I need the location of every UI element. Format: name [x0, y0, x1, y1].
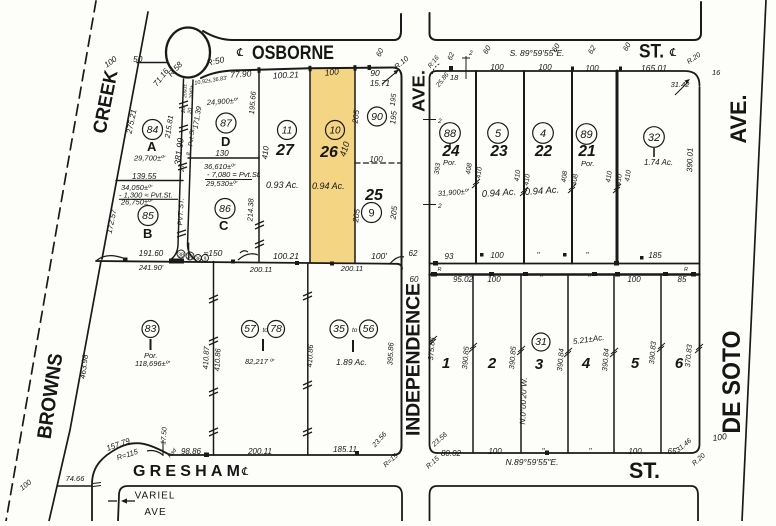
svg-text:1.89 Ac.: 1.89 Ac. — [336, 357, 367, 367]
svg-text:18: 18 — [450, 73, 459, 82]
svg-text:275.21: 275.21 — [124, 109, 138, 136]
svg-text:395.86: 395.86 — [385, 341, 395, 365]
svg-text:241.90': 241.90' — [138, 263, 164, 272]
svg-text:100.21: 100.21 — [273, 69, 300, 80]
svg-text:10: 10 — [329, 126, 341, 137]
svg-text:100: 100 — [324, 66, 339, 77]
svg-text:410: 410 — [260, 145, 270, 160]
svg-text:100: 100 — [488, 447, 502, 456]
svg-text:21: 21 — [577, 143, 595, 160]
svg-text:390.83: 390.83 — [647, 340, 658, 364]
svg-text:": " — [586, 251, 590, 260]
svg-text:90: 90 — [370, 68, 380, 78]
svg-text:23.56: 23.56 — [371, 431, 389, 450]
svg-text:195.66: 195.66 — [247, 90, 258, 114]
svg-text:20: 20 — [187, 107, 194, 116]
svg-text:84: 84 — [147, 124, 159, 136]
svg-text:2: 2 — [437, 203, 442, 210]
svg-text:80.02: 80.02 — [441, 449, 462, 458]
svg-text:370.83: 370.83 — [683, 343, 694, 367]
svg-text:2: 2 — [468, 50, 473, 57]
svg-text:29,700±º': 29,700±º' — [133, 154, 166, 163]
svg-text:0.94 Ac.: 0.94 Ac. — [481, 187, 516, 200]
svg-text:100: 100 — [712, 431, 728, 443]
svg-text:93: 93 — [445, 252, 454, 261]
svg-text:100: 100 — [18, 477, 34, 492]
svg-text:B: B — [143, 226, 152, 241]
svg-text:86: 86 — [219, 203, 231, 215]
svg-text:5: 5 — [495, 128, 502, 140]
svg-text:205: 205 — [389, 205, 400, 221]
svg-text:0.94 Ac.: 0.94 Ac. — [312, 181, 345, 191]
svg-text:195: 195 — [388, 110, 399, 125]
svg-text:100.21: 100.21 — [273, 251, 299, 261]
svg-text:410: 410 — [523, 173, 532, 186]
svg-text:100: 100 — [369, 155, 383, 164]
svg-text:83: 83 — [145, 323, 157, 335]
svg-text:87: 87 — [220, 118, 233, 130]
svg-text:ST.: ST. — [629, 458, 660, 483]
svg-text:100': 100' — [371, 251, 387, 261]
svg-text:1.74 Ac.: 1.74 Ac. — [644, 158, 673, 167]
svg-text:100: 100 — [628, 447, 642, 456]
svg-text:78: 78 — [270, 323, 282, 335]
svg-text:24,900±º': 24,900±º' — [206, 96, 239, 107]
svg-text:390.84: 390.84 — [555, 348, 566, 372]
svg-text:98.86: 98.86 — [181, 447, 202, 456]
svg-text:62: 62 — [409, 249, 418, 258]
svg-text:100: 100 — [490, 251, 504, 260]
svg-text:89: 89 — [580, 129, 592, 141]
svg-text:17.50: 17.50 — [160, 427, 169, 445]
svg-text:205: 205 — [351, 208, 362, 224]
svg-text:GRESHAM: GRESHAM — [133, 463, 240, 480]
svg-text:410.87: 410.87 — [201, 345, 211, 369]
svg-text:R:16: R:16 — [427, 54, 441, 69]
svg-text:38: 38 — [178, 253, 184, 259]
svg-text:60: 60 — [481, 43, 493, 55]
svg-text:100: 100 — [490, 63, 504, 72]
svg-text:INDEPENDENCE: INDEPENDENCE — [403, 283, 425, 436]
svg-text:77.90: 77.90 — [230, 68, 252, 79]
svg-text:0.93 Ac.: 0.93 Ac. — [266, 180, 299, 190]
svg-text:100: 100 — [102, 54, 119, 69]
svg-text:191.60: 191.60 — [139, 249, 164, 258]
svg-text:100: 100 — [585, 64, 599, 73]
svg-text:16: 16 — [712, 68, 721, 77]
svg-text:Por.: Por. — [443, 158, 456, 167]
svg-text:D: D — [221, 134, 230, 149]
svg-text:205: 205 — [351, 109, 362, 125]
svg-text:32: 32 — [648, 132, 660, 144]
svg-text:57: 57 — [244, 323, 257, 335]
svg-text:381.99: 381.99 — [172, 137, 185, 166]
svg-text:100: 100 — [538, 63, 552, 72]
svg-text:56: 56 — [363, 323, 375, 335]
svg-text:88: 88 — [444, 128, 457, 140]
svg-text:C: C — [219, 218, 229, 233]
svg-text:100: 100 — [487, 275, 501, 284]
svg-text:185.11: 185.11 — [333, 445, 357, 454]
svg-text:215.81: 215.81 — [163, 115, 176, 140]
svg-text:60: 60 — [621, 40, 633, 52]
svg-text:29,530±º': 29,530±º' — [205, 179, 238, 188]
svg-text:410: 410 — [605, 170, 614, 183]
svg-text:AVE: AVE — [144, 507, 166, 518]
svg-text:": " — [589, 447, 593, 456]
svg-text:25.86: 25.86 — [434, 71, 450, 89]
svg-text:": " — [537, 251, 541, 260]
svg-text:to: to — [263, 327, 269, 334]
svg-text:410.86: 410.86 — [212, 347, 222, 371]
svg-text:390.01: 390.01 — [685, 148, 695, 173]
svg-text:9: 9 — [368, 208, 374, 220]
svg-text:≈150: ≈150 — [204, 248, 223, 258]
svg-text:℄: ℄ — [241, 466, 249, 478]
svg-text:A: A — [147, 139, 157, 154]
svg-text:2040±: 2040± — [189, 85, 196, 100]
svg-text:410: 410 — [514, 169, 523, 182]
svg-text:90: 90 — [371, 111, 383, 123]
svg-text:95.02: 95.02 — [453, 275, 474, 284]
svg-text:3: 3 — [535, 356, 544, 373]
svg-text:390.84: 390.84 — [600, 348, 611, 372]
svg-text:118,696±º': 118,696±º' — [135, 359, 170, 368]
svg-text:VARIEL: VARIEL — [135, 491, 176, 502]
svg-text:82,217 º': 82,217 º' — [245, 357, 275, 366]
svg-text:R.20: R.20 — [686, 52, 702, 66]
svg-text:R.20: R.20 — [691, 452, 707, 467]
svg-text:200.11: 200.11 — [249, 265, 272, 274]
svg-text:": " — [542, 447, 546, 456]
svg-text:Por.: Por. — [581, 159, 594, 168]
svg-text:to: to — [352, 327, 358, 334]
svg-text:0.94 Ac.: 0.94 Ac. — [524, 185, 559, 198]
svg-text:139.55: 139.55 — [132, 172, 157, 181]
svg-text:N.89°59'55"E.: N.89°59'55"E. — [506, 457, 559, 467]
svg-text:OSBORNE: OSBORNE — [252, 42, 334, 64]
svg-text:4: 4 — [540, 128, 546, 140]
svg-text:DE SOTO: DE SOTO — [718, 331, 746, 434]
svg-text:27: 27 — [275, 142, 295, 159]
svg-text:410: 410 — [624, 169, 633, 182]
svg-text:39: 39 — [187, 255, 193, 261]
svg-text:410.86: 410.86 — [305, 343, 315, 367]
svg-text:5.21±Ac.: 5.21±Ac. — [572, 333, 604, 346]
svg-text:9: 9 — [204, 257, 207, 263]
svg-text:31,900±º': 31,900±º' — [438, 187, 470, 198]
svg-text:PVT. ST.: PVT. ST. — [177, 198, 185, 225]
svg-text:463.98: 463.98 — [78, 353, 90, 379]
svg-text:60: 60 — [374, 46, 386, 58]
svg-text:85: 85 — [142, 210, 154, 222]
svg-text:172.57: 172.57 — [105, 208, 119, 234]
svg-text:85: 85 — [678, 275, 687, 284]
svg-text:200.11: 200.11 — [340, 264, 363, 273]
svg-text:408: 408 — [465, 162, 474, 175]
svg-text:N.0°00'20"W.: N.0°00'20"W. — [518, 377, 529, 425]
svg-text:62: 62 — [586, 43, 598, 55]
svg-text:R: R — [684, 267, 688, 273]
svg-text:AVE.: AVE. — [409, 70, 429, 112]
svg-text:200.11: 200.11 — [247, 447, 272, 456]
svg-text:ST.: ST. — [639, 42, 664, 63]
svg-text:31.46: 31.46 — [675, 437, 693, 454]
svg-text:11: 11 — [282, 126, 292, 137]
svg-text:2: 2 — [487, 355, 497, 372]
svg-text:BROWNS: BROWNS — [34, 352, 68, 440]
svg-text:2093±: 2093± — [182, 84, 189, 99]
svg-text:AVE.: AVE. — [726, 95, 751, 144]
svg-text:36: 36 — [195, 257, 201, 263]
svg-text:390.85: 390.85 — [507, 345, 518, 369]
svg-text:195: 195 — [388, 92, 399, 106]
svg-text:℄: ℄ — [236, 47, 244, 59]
svg-text:62: 62 — [447, 52, 456, 62]
svg-text:CREEK: CREEK — [90, 68, 123, 135]
svg-text:50: 50 — [133, 54, 143, 64]
svg-text:1: 1 — [442, 355, 450, 372]
svg-text:R.10: R.10 — [392, 54, 411, 72]
svg-text:5: 5 — [631, 355, 640, 372]
svg-text:23: 23 — [489, 143, 508, 160]
svg-text:31: 31 — [535, 336, 547, 348]
svg-text:4: 4 — [581, 355, 591, 372]
svg-text:R:50: R:50 — [206, 54, 226, 68]
svg-text:100: 100 — [627, 275, 641, 284]
svg-text:214.38: 214.38 — [245, 197, 255, 222]
svg-text:10,92±,36.83': 10,92±,36.83' — [194, 75, 229, 86]
svg-text:390.85: 390.85 — [460, 345, 471, 369]
svg-text:R: R — [438, 267, 442, 273]
svg-text:130: 130 — [215, 149, 229, 158]
svg-text:35: 35 — [333, 323, 345, 335]
svg-text:Rad: Rad — [167, 447, 179, 459]
svg-text:74.66: 74.66 — [66, 474, 86, 483]
svg-text:22: 22 — [534, 143, 553, 160]
svg-text:410: 410 — [615, 173, 624, 186]
svg-text:410: 410 — [475, 166, 484, 179]
svg-text:60: 60 — [410, 275, 419, 284]
svg-text:23.56: 23.56 — [430, 431, 449, 449]
svg-text:185: 185 — [648, 251, 662, 260]
svg-text:165.01: 165.01 — [641, 63, 667, 73]
svg-text:393: 393 — [434, 162, 443, 175]
svg-text:- 7,080 = Pvt.St.: - 7,080 = Pvt.St. — [207, 170, 261, 179]
svg-text:℄: ℄ — [669, 47, 677, 59]
svg-text:408: 408 — [561, 170, 570, 183]
svg-text:25: 25 — [364, 187, 384, 204]
svg-text:26: 26 — [319, 144, 338, 161]
svg-text:R:15: R:15 — [425, 455, 441, 470]
svg-text:2: 2 — [437, 118, 442, 125]
